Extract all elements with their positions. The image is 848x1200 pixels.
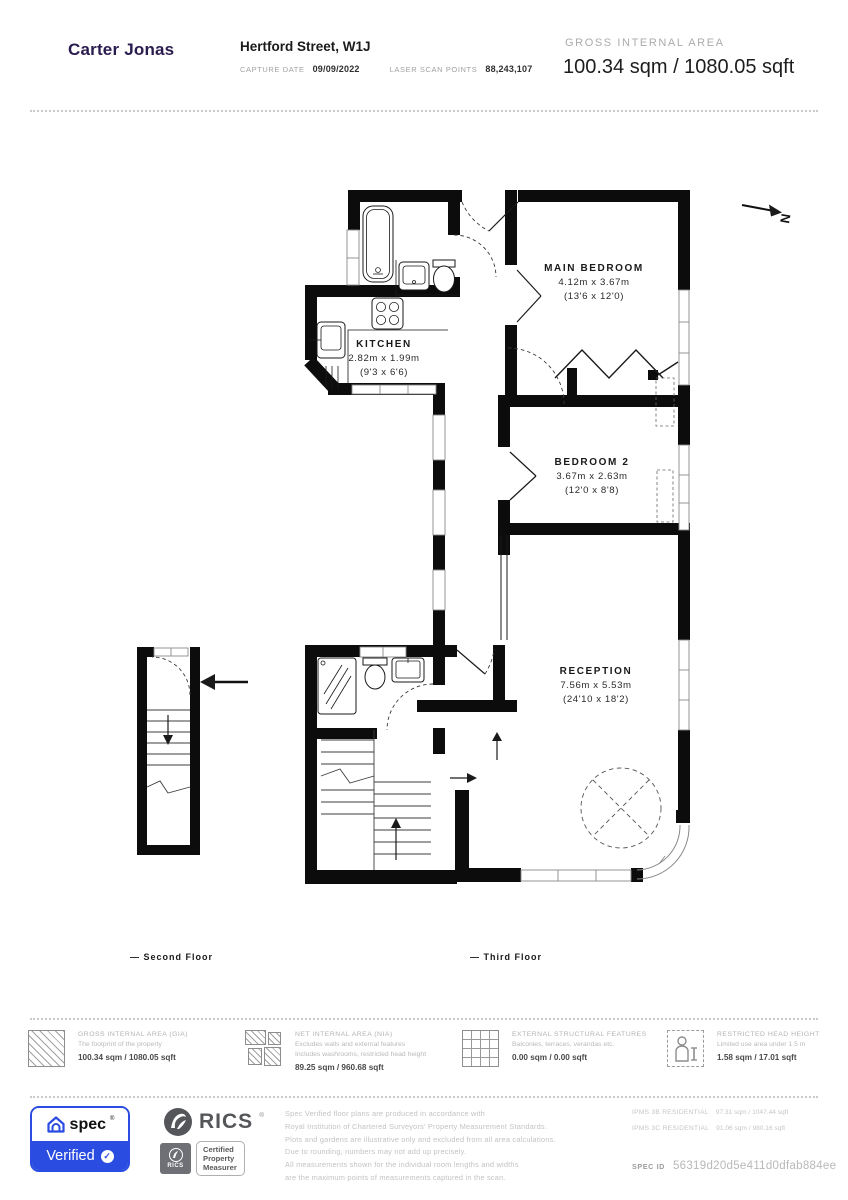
svg-text:(9'3 x 6'6): (9'3 x 6'6) [360, 367, 408, 378]
legend-top-divider [30, 1018, 818, 1020]
room-label-reception: RECEPTION 7.56m x 5.53m (24'10 x 18'2) [560, 666, 633, 705]
svg-text:BEDROOM 2: BEDROOM 2 [555, 457, 630, 468]
legend-nia: NET INTERNAL AREA (NIA) Excludes walls a… [245, 1030, 450, 1072]
rics-badge-name: RICS [167, 1163, 183, 1169]
spec-house-icon [46, 1115, 66, 1134]
svg-text:RECEPTION: RECEPTION [560, 666, 633, 677]
legend-external-title: EXTERNAL STRUCTURAL FEATURES [512, 1031, 647, 1038]
legend-gia-title: GROSS INTERNAL AREA (GIA) [78, 1031, 188, 1038]
direction-arrows [450, 732, 502, 783]
legend-gia: GROSS INTERNAL AREA (GIA) The footprint … [28, 1030, 233, 1067]
bay-window [637, 825, 689, 879]
legend-external: EXTERNAL STRUCTURAL FEATURES Balconies, … [462, 1030, 667, 1067]
capture-date-value: 09/09/2022 [313, 64, 360, 74]
laser-scan-value: 88,243,107 [485, 64, 532, 74]
rics-name: RICS [199, 1110, 253, 1134]
svg-text:(12'0 x 8'8): (12'0 x 8'8) [565, 485, 619, 496]
svg-text:MAIN BEDROOM: MAIN BEDROOM [544, 263, 644, 274]
legend-nia-title: NET INTERNAL AREA (NIA) [295, 1031, 426, 1038]
third-floor-plan: MAIN BEDROOM 4.12m x 3.67m (13'6 x 12'0)… [305, 190, 690, 884]
disclaimer-text: Spec Verified floor plans are produced i… [285, 1108, 585, 1185]
bathroom-sink-icon [399, 262, 429, 290]
room-label-main-bedroom: MAIN BEDROOM 4.12m x 3.67m (13'6 x 12'0) [544, 263, 644, 302]
rics-certified-square-icon: RICS [160, 1143, 191, 1174]
spec-id-value: 56319d20d5e411d0dfab884ee [673, 1160, 836, 1172]
second-floor-label: — Second Floor [130, 952, 213, 962]
legend-gia-value: 100.34 sqm / 1080.05 sqft [78, 1053, 188, 1062]
spec-reg-mark: ® [110, 1116, 114, 1122]
svg-text:3.67m x 2.63m: 3.67m x 2.63m [556, 471, 627, 482]
shower-sink-icon [392, 658, 424, 682]
legend-restricted: RESTRICTED HEAD HEIGHT Limited use area … [667, 1030, 848, 1067]
gross-internal-area-label: GROSS INTERNAL AREA [565, 37, 725, 49]
carter-jonas-logo: Carter Jonas [68, 40, 174, 60]
svg-text:(24'10 x 18'2): (24'10 x 18'2) [563, 694, 629, 705]
third-floor-label: — Third Floor [470, 952, 542, 962]
entrance-arrow [200, 674, 248, 690]
legend-restricted-title: RESTRICTED HEAD HEIGHT [717, 1031, 820, 1038]
legend-restricted-line: Limited use area under 1.5 m [717, 1041, 820, 1048]
legend-gia-line: The footprint of the property [78, 1041, 188, 1048]
legend-nia-line-1: Excludes walls and external features [295, 1041, 426, 1048]
gross-internal-area-value: 100.34 sqm / 1080.05 sqft [563, 56, 794, 79]
legend-external-value: 0.00 sqm / 0.00 sqft [512, 1053, 647, 1062]
shower-toilet-icon [363, 658, 387, 689]
svg-text:4.12m x 3.67m: 4.12m x 3.67m [558, 277, 629, 288]
gia-hatched-square-icon [28, 1030, 65, 1067]
legend-external-line: Balconies, terraces, verandas etc. [512, 1041, 647, 1048]
floorplan-page: Carter Jonas Hertford Street, W1J CAPTUR… [0, 0, 848, 1200]
legend-bottom-divider [30, 1096, 818, 1098]
second-floor-stairwell [137, 647, 248, 855]
shower-icon [318, 658, 356, 714]
rics-certified-badge: RICS Certified Property Measurer [160, 1141, 245, 1176]
bathroom-toilet-icon [433, 260, 455, 292]
floor-plan-svg: N [0, 170, 848, 980]
ipms-3c-label: IPMS 3C RESIDENTIAL [632, 1125, 709, 1132]
external-grid-icon [462, 1030, 499, 1067]
rics-reg-mark: ® [259, 1112, 264, 1119]
bathtub-icon [363, 206, 393, 282]
restricted-head-height-person-icon [667, 1030, 704, 1067]
north-arrow: N [742, 205, 794, 225]
legend-nia-line-2: Includes washrooms, restricted head heig… [295, 1051, 426, 1058]
stairs [321, 730, 431, 870]
svg-text:N: N [777, 213, 793, 225]
spec-verified-badge: spec ® Verified ✓ [30, 1106, 130, 1172]
table-icon [581, 768, 661, 848]
capture-meta: CAPTURE DATE 09/09/2022 LASER SCAN POINT… [240, 64, 532, 74]
svg-text:(13'6 x 12'0): (13'6 x 12'0) [564, 291, 624, 302]
laser-scan-label: LASER SCAN POINTS [390, 65, 478, 74]
room-label-kitchen: KITCHEN 2.82m x 1.99m (9'3 x 6'6) [348, 339, 419, 378]
legend-restricted-value: 1.58 sqm / 17.01 sqft [717, 1053, 820, 1062]
spec-verified-text: Verified [46, 1148, 94, 1164]
rics-lion-icon [163, 1107, 193, 1137]
capture-date-label: CAPTURE DATE [240, 65, 305, 74]
ipms-3b-value: 97.31 sqm / 1047.44 sqft [716, 1109, 789, 1116]
rics-certified-text: Certified Property Measurer [196, 1141, 245, 1176]
svg-text:2.82m x 1.99m: 2.82m x 1.99m [348, 353, 419, 364]
verified-check-icon: ✓ [101, 1150, 114, 1163]
rics-logo: RICS ® [163, 1107, 264, 1137]
nia-hatched-puzzle-icon [245, 1030, 282, 1067]
spec-id-row: SPEC ID 56319d20d5e411d0dfab884ee [632, 1160, 836, 1172]
spec-id-label: SPEC ID [632, 1162, 665, 1171]
legend-nia-value: 89.25 sqm / 960.68 sqft [295, 1063, 426, 1072]
property-address: Hertford Street, W1J [240, 39, 371, 54]
svg-text:KITCHEN: KITCHEN [356, 339, 412, 350]
ipms-3b-row: IPMS 3B RESIDENTIAL 97.31 sqm / 1047.44 … [632, 1109, 788, 1116]
svg-text:7.56m x 5.53m: 7.56m x 5.53m [560, 680, 631, 691]
hob-icon [372, 298, 403, 329]
header-divider [30, 110, 818, 112]
ipms-3b-label: IPMS 3B RESIDENTIAL [632, 1109, 709, 1116]
room-label-bedroom-2: BEDROOM 2 3.67m x 2.63m (12'0 x 8'8) [555, 457, 630, 496]
ipms-3c-value: 91.06 sqm / 980.16 sqft [716, 1125, 785, 1132]
ipms-3c-row: IPMS 3C RESIDENTIAL 91.06 sqm / 980.16 s… [632, 1125, 785, 1132]
spec-brand: spec [70, 1116, 106, 1134]
